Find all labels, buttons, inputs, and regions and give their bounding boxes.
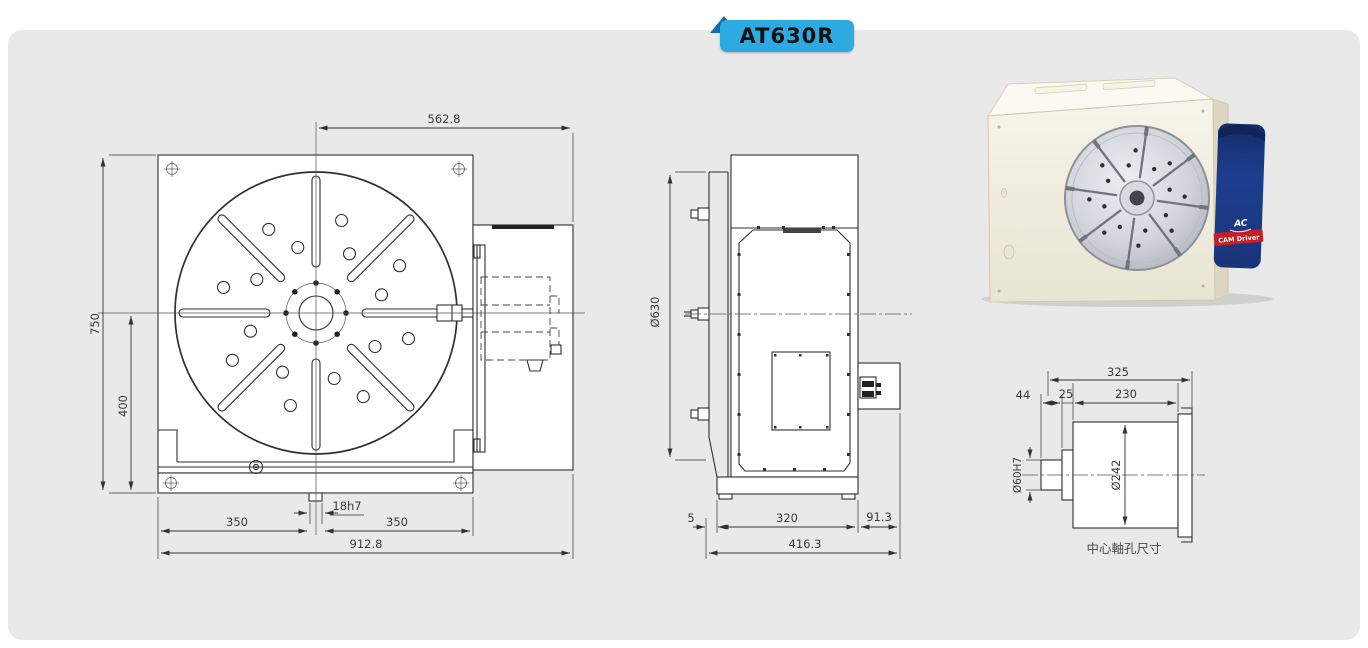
detail-dim-flange-diameter: Ø242 xyxy=(1109,459,1123,490)
product-photo: AC CAM Driver xyxy=(981,78,1273,307)
detail-dim-total-length: 325 xyxy=(1107,365,1129,379)
side-dim-body-depth: 320 xyxy=(776,511,798,525)
detail-dim-shaft-length: 44 xyxy=(1016,388,1031,402)
side-view-drawing: Ø630 5 320 91.3 416.3 xyxy=(648,155,912,559)
front-dim-total-width: 912.8 xyxy=(350,537,383,551)
shaft-detail-drawing: 325 44 25 230 Ø60H7 Ø242 中心軸孔尺寸 xyxy=(1012,365,1205,556)
front-dim-bottom-right: 350 xyxy=(386,515,408,529)
driver-logo-text: AC xyxy=(1233,219,1248,230)
photo-driver-unit: AC CAM Driver xyxy=(1213,123,1265,269)
front-dim-key-slot: 18h7 xyxy=(332,499,361,513)
shaft-detail-caption: 中心軸孔尺寸 xyxy=(1086,541,1161,556)
detail-dim-step-length: 25 xyxy=(1059,387,1074,401)
access-panel xyxy=(772,352,830,430)
side-dim-total-depth: 416.3 xyxy=(789,537,822,551)
front-dim-top-width: 562.8 xyxy=(428,112,461,126)
front-dim-height: 750 xyxy=(88,313,102,335)
side-dim-table-diameter: Ø630 xyxy=(648,296,662,327)
side-dim-motor-depth: 91.3 xyxy=(866,510,892,524)
front-view-drawing: 562.8 750 400 350 18h7 350 912.8 xyxy=(88,112,585,559)
technical-drawing-canvas: 562.8 750 400 350 18h7 350 912.8 xyxy=(0,0,1368,648)
detail-dim-bore-diameter: Ø60H7 xyxy=(1012,457,1024,493)
connector-box xyxy=(858,363,900,409)
page: AT630R xyxy=(0,0,1368,648)
front-dim-center-height: 400 xyxy=(116,395,130,417)
detail-dim-body-length: 230 xyxy=(1115,387,1137,401)
front-dim-bottom-left: 350 xyxy=(226,515,248,529)
motor-housing-front xyxy=(473,225,573,470)
side-dim-overhang: 5 xyxy=(687,511,694,525)
